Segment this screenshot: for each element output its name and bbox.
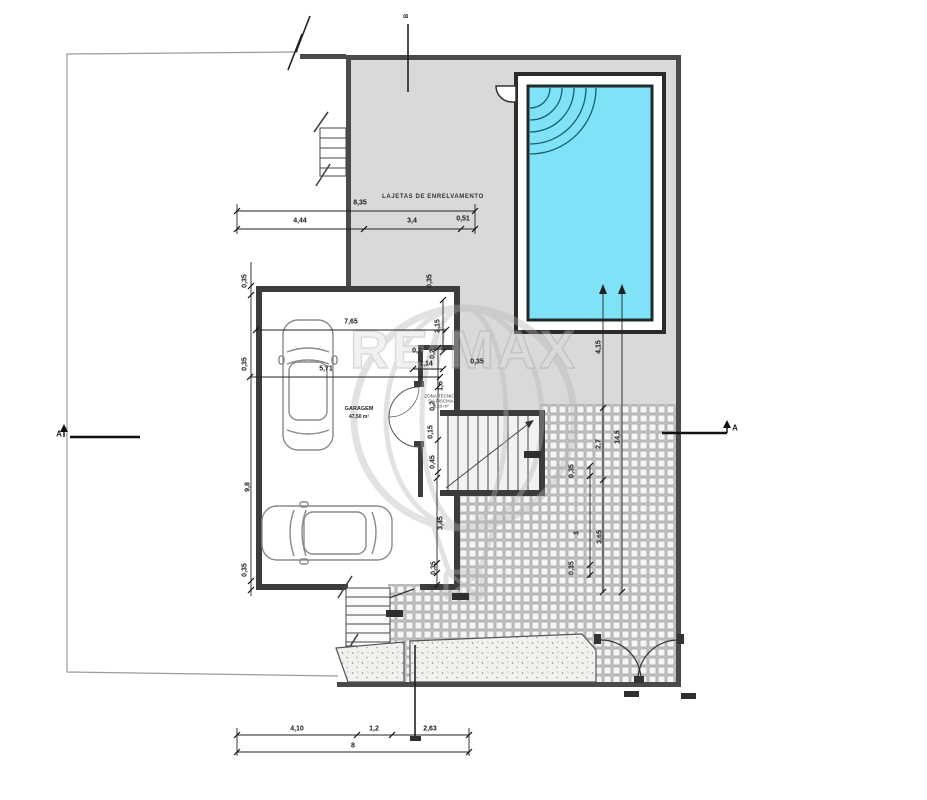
dimension-label: 9,8 xyxy=(245,482,252,492)
dimension-label: 1,2 xyxy=(369,726,379,733)
dimension-label: 14,5 xyxy=(615,430,622,444)
dimension-label: 0,35 xyxy=(242,274,249,288)
dimension-label: 2,63 xyxy=(423,726,437,733)
section-marker-top: B xyxy=(404,14,410,18)
dimension-label: 1,14 xyxy=(419,361,433,368)
dimension-label: 3 xyxy=(574,531,581,535)
dimension-label: 0,2 xyxy=(412,348,422,355)
dimension-label: 3,45 xyxy=(438,516,445,530)
section-marker-right: A xyxy=(732,424,738,433)
dimension-label: 7,65 xyxy=(344,319,358,326)
dimension-label: 8 xyxy=(351,743,355,750)
garage-label: GARAGEM xyxy=(345,406,374,412)
dimension-label: 3,4 xyxy=(407,218,417,225)
dimension-label: 0,2 xyxy=(430,349,437,359)
dimension-label: 4,44 xyxy=(293,218,307,225)
dimension-label: 0,35 xyxy=(569,464,576,478)
floor-plan-drawing: RE/MAX xyxy=(0,0,927,800)
side-gate-stairs xyxy=(314,112,346,186)
dimension-label: 0,35 xyxy=(470,359,484,366)
dimension-label: 3,65 xyxy=(597,530,604,544)
dimension-label: 4,10 xyxy=(290,726,304,733)
dimension-label: 0,35 xyxy=(431,561,438,575)
dimension-label: 1,5 xyxy=(438,381,445,391)
dimension-label: 5,71 xyxy=(319,366,333,373)
floor-plan-canvas: RE/MAX xyxy=(0,0,927,800)
dimension-label: 0,15 xyxy=(428,425,435,439)
dimension-label: 4,15 xyxy=(596,340,603,354)
dimension-label: 0,2 xyxy=(430,401,437,411)
dimension-label: 0,35 xyxy=(242,563,249,577)
dimension-label: 0,35 xyxy=(569,561,576,575)
break-marks xyxy=(288,16,310,70)
section-marker-left: A xyxy=(56,430,62,439)
dimension-label: 8,35 xyxy=(353,200,367,207)
garage-area-label: 47,50 m² xyxy=(349,414,369,420)
swimming-pool xyxy=(496,74,664,332)
dimension-label: 0,51 xyxy=(456,216,470,223)
dimension-label: 0,35 xyxy=(242,357,249,371)
dimension-label: 0,35 xyxy=(427,274,434,288)
dimension-label: 0,45 xyxy=(430,455,437,469)
patio-label: LAJETAS DE ENRELVAMENTO xyxy=(382,194,484,200)
dimension-label: 2,7 xyxy=(596,439,603,449)
dimension-label: 2,15 xyxy=(435,319,442,333)
svg-text:RE/MAX: RE/MAX xyxy=(350,320,578,380)
